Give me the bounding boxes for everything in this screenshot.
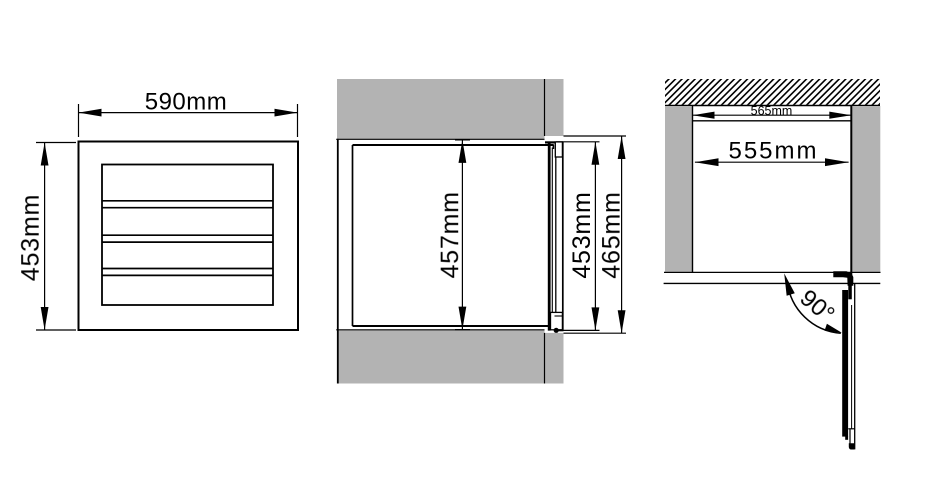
- svg-text:590mm: 590mm: [145, 89, 228, 116]
- svg-text:453mm: 453mm: [568, 191, 596, 278]
- svg-text:457mm: 457mm: [436, 191, 464, 278]
- svg-text:453mm: 453mm: [17, 194, 45, 281]
- svg-text:565mm: 565mm: [751, 104, 793, 118]
- svg-text:555mm: 555mm: [728, 138, 818, 165]
- svg-text:465mm: 465mm: [598, 191, 626, 278]
